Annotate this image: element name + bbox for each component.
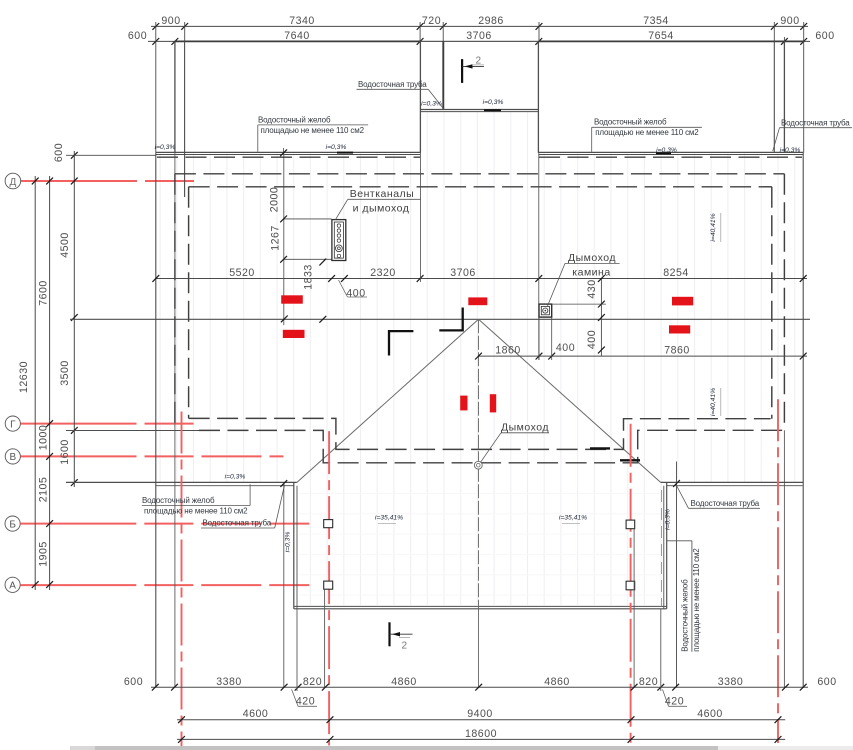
svg-text:720: 720 (422, 15, 441, 27)
svg-text:3380: 3380 (718, 676, 744, 688)
svg-text:820: 820 (639, 676, 658, 688)
svg-text:Водосточная труба: Водосточная труба (203, 519, 272, 528)
svg-text:2986: 2986 (478, 15, 504, 27)
svg-text:Водосточная труба: Водосточная труба (358, 80, 427, 89)
svg-text:3706: 3706 (450, 267, 476, 279)
svg-text:1860: 1860 (495, 345, 521, 357)
svg-text:площадью не менее 110 см2: площадью не менее 110 см2 (144, 506, 248, 515)
svg-text:4500: 4500 (59, 232, 71, 258)
svg-text:2105: 2105 (38, 477, 50, 503)
svg-text:18600: 18600 (465, 728, 497, 740)
svg-text:1267: 1267 (270, 225, 282, 251)
svg-text:8254: 8254 (663, 267, 689, 279)
svg-text:Вентканалы: Вентканалы (350, 188, 414, 200)
svg-text:600: 600 (53, 143, 65, 162)
svg-text:430: 430 (586, 279, 598, 298)
svg-text:Дымоход: Дымоход (501, 421, 549, 433)
svg-text:7654: 7654 (648, 30, 674, 42)
svg-text:i=0,3%: i=0,3% (285, 532, 292, 553)
svg-text:3380: 3380 (216, 676, 242, 688)
svg-text:7600: 7600 (38, 280, 50, 306)
svg-text:Водосточный желоб: Водосточный желоб (680, 579, 689, 652)
svg-text:2: 2 (401, 641, 407, 652)
svg-text:i=40,41%: i=40,41% (710, 388, 717, 416)
svg-text:2320: 2320 (370, 267, 396, 279)
svg-text:i=0,3%: i=0,3% (225, 474, 246, 481)
svg-text:Д: Д (10, 177, 17, 188)
svg-text:1833: 1833 (303, 264, 315, 290)
svg-text:5520: 5520 (229, 267, 255, 279)
svg-text:600: 600 (815, 30, 834, 42)
svg-text:4600: 4600 (697, 708, 723, 720)
svg-text:i=35,41%: i=35,41% (375, 515, 403, 522)
svg-text:1905: 1905 (38, 541, 50, 567)
svg-text:900: 900 (161, 15, 180, 27)
svg-text:Водосточный желоб: Водосточный желоб (258, 116, 331, 125)
svg-text:900: 900 (780, 15, 799, 27)
svg-text:4600: 4600 (243, 708, 269, 720)
svg-text:i=0,3%: i=0,3% (326, 144, 347, 151)
svg-text:600: 600 (124, 676, 143, 688)
svg-text:площадью не менее 110 см2: площадью не менее 110 см2 (595, 128, 699, 137)
svg-text:Г: Г (10, 419, 16, 430)
svg-text:1000: 1000 (38, 425, 50, 451)
svg-text:7354: 7354 (643, 15, 669, 27)
svg-text:площадью не менее 110 см2: площадью не менее 110 см2 (692, 548, 701, 652)
svg-text:i=35,41%: i=35,41% (559, 515, 587, 522)
svg-text:i=0,3%: i=0,3% (665, 509, 672, 530)
svg-text:i=40,41%: i=40,41% (710, 213, 717, 241)
svg-text:4860: 4860 (391, 676, 417, 688)
svg-text:и дымоход: и дымоход (353, 203, 410, 215)
svg-text:7860: 7860 (664, 345, 690, 357)
svg-text:7640: 7640 (284, 30, 310, 42)
svg-text:7340: 7340 (289, 15, 315, 27)
svg-text:i=0,3%: i=0,3% (421, 101, 442, 108)
svg-text:3500: 3500 (59, 360, 71, 386)
svg-text:i=0,3%: i=0,3% (780, 147, 801, 154)
svg-text:площадью не менее 110 см2: площадью не менее 110 см2 (261, 126, 365, 135)
svg-text:600: 600 (128, 30, 147, 42)
svg-text:9400: 9400 (467, 708, 493, 720)
svg-text:Водосточная труба: Водосточная труба (781, 118, 850, 127)
svg-text:420: 420 (296, 695, 315, 707)
svg-text:4860: 4860 (544, 676, 570, 688)
svg-text:Водосточный желоб: Водосточный желоб (594, 118, 667, 127)
svg-text:i=0,3%: i=0,3% (155, 144, 176, 151)
svg-text:2000: 2000 (269, 187, 281, 213)
svg-text:400: 400 (586, 330, 598, 349)
svg-text:1600: 1600 (59, 439, 71, 465)
svg-text:420: 420 (665, 695, 684, 707)
svg-text:600: 600 (817, 676, 836, 688)
svg-text:Б: Б (9, 519, 16, 530)
svg-text:i=0,3%: i=0,3% (483, 99, 504, 106)
svg-text:камина: камина (572, 266, 610, 278)
svg-text:Водосточная труба: Водосточная труба (691, 499, 760, 508)
svg-text:А: А (9, 581, 16, 592)
svg-text:В: В (9, 452, 16, 463)
svg-text:12630: 12630 (18, 361, 30, 393)
svg-text:Водосточный желоб: Водосточный желоб (142, 496, 215, 505)
svg-text:400: 400 (556, 342, 575, 354)
svg-text:Дымоход: Дымоход (568, 252, 616, 264)
svg-text:3706: 3706 (466, 30, 492, 42)
svg-text:400: 400 (346, 288, 365, 300)
svg-text:820: 820 (303, 676, 322, 688)
